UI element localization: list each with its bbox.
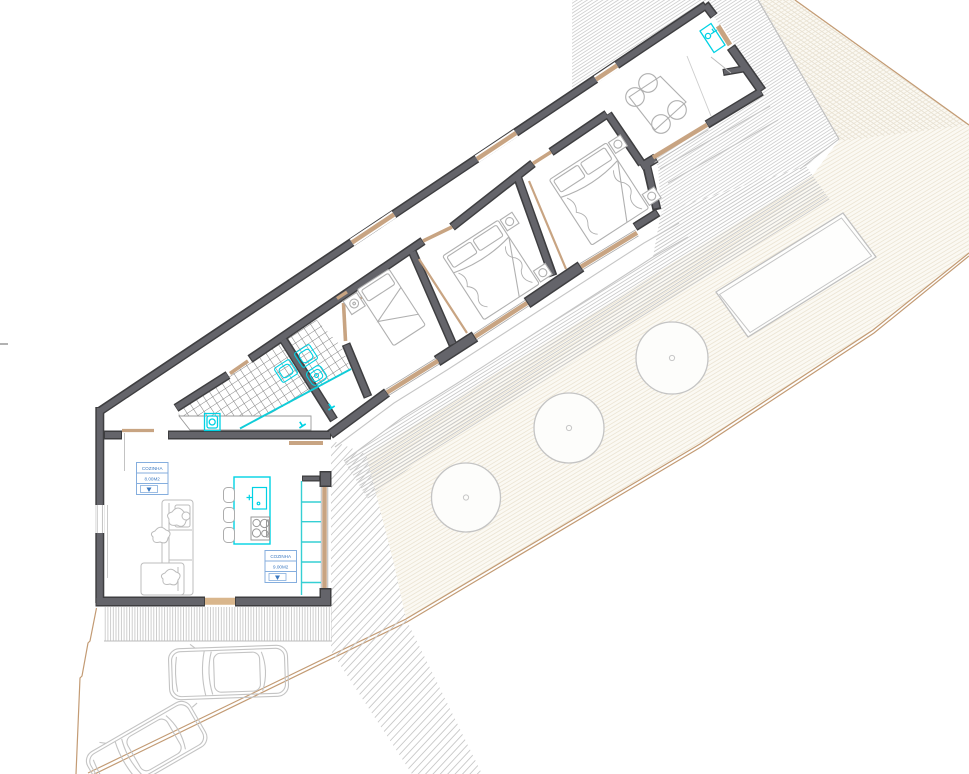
svg-text:9.00M2: 9.00M2 (273, 565, 289, 570)
svg-text:COZINHA: COZINHA (270, 554, 292, 559)
svg-text:COZINHA: COZINHA (142, 466, 164, 471)
svg-text:8.00M2: 8.00M2 (145, 477, 161, 482)
